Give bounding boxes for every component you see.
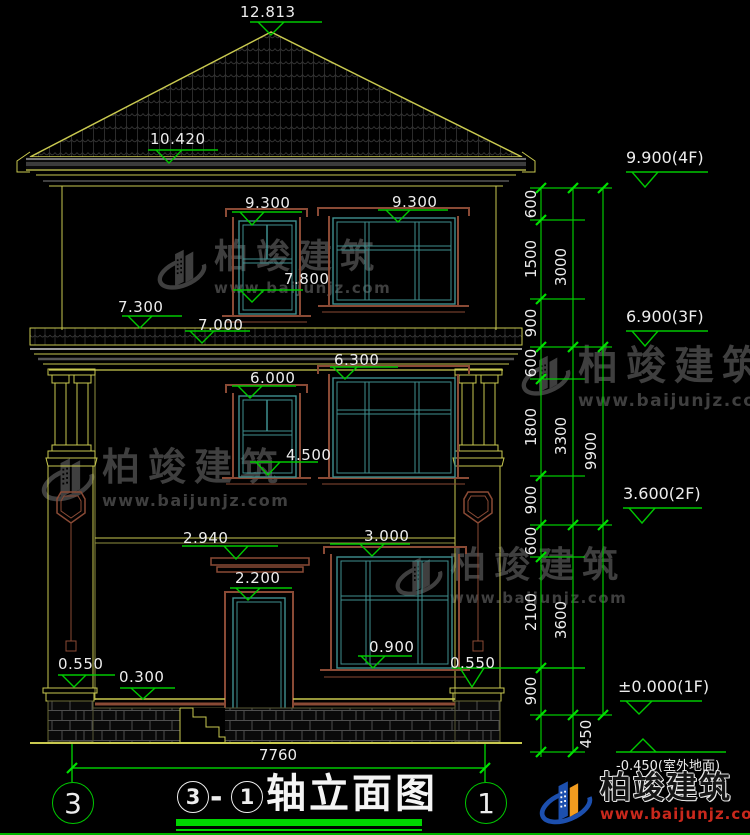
- level-label-2f: 3.600(2F): [623, 484, 701, 503]
- axis-bubble-1: 1: [465, 782, 507, 824]
- dim-seg-2100: 2100: [522, 582, 540, 642]
- dim-floor-3300: 3300: [552, 406, 570, 466]
- spot-label-canopy: 2.940: [183, 529, 228, 547]
- title-axis-bubble-b: 1: [231, 781, 263, 813]
- spot-label-band-low: 7.000: [198, 316, 243, 334]
- window-2f-large: [318, 366, 469, 484]
- brand-url: www.baijunjz.com: [600, 805, 750, 823]
- brand-name: 柏竣建筑: [600, 772, 750, 805]
- dim-floor-3000: 3000: [552, 237, 570, 297]
- window-3f-large: [318, 208, 469, 312]
- roof: [17, 32, 535, 186]
- dim-seg-600b: 600: [522, 333, 540, 393]
- level-label-3f: 6.900(3F): [626, 307, 704, 326]
- spot-label-eave: 10.420: [150, 130, 206, 148]
- level-label-4f: 9.900(4F): [626, 148, 704, 167]
- floor-level-markers: [616, 172, 726, 752]
- title-underline-thick: [176, 819, 422, 826]
- spot-label-3f-win-sill: 7.800: [284, 270, 329, 288]
- axis-number: 1: [477, 787, 495, 820]
- spot-label-3f-win-top-b: 9.300: [392, 193, 437, 211]
- spot-label-porch: 0.300: [119, 668, 164, 686]
- spot-label-2f-small-top: 6.000: [250, 369, 295, 387]
- dim-seg-600c: 600: [522, 511, 540, 571]
- spot-label-1f-sill: 0.900: [369, 638, 414, 656]
- dim-seg-1800: 1800: [522, 397, 540, 457]
- brand-block: 柏竣建筑 www.baijunjz.com: [538, 772, 750, 830]
- level-label-1f: ±0.000(1F): [618, 677, 709, 696]
- elevation-linework: [0, 0, 750, 835]
- dim-floor-3600: 3600: [552, 590, 570, 650]
- column-left: [43, 369, 97, 742]
- spot-label-2f-sill: 4.500: [286, 446, 331, 464]
- spot-label-2f-big-top: 6.300: [334, 351, 379, 369]
- eave-band-2f: [30, 328, 522, 370]
- axis-bubble-3: 3: [52, 782, 94, 824]
- spot-label-1f-win-top: 3.000: [364, 527, 409, 545]
- title-axis-number: 3: [186, 785, 201, 809]
- title-dash: -: [210, 780, 222, 815]
- drawing-title: 轴立面图: [266, 774, 438, 814]
- dim-seg-600a: 600: [522, 174, 540, 234]
- window-2f-small: [222, 385, 311, 484]
- spot-label-ridge: 12.813: [240, 3, 296, 21]
- spot-label-door-top: 2.200: [235, 569, 280, 587]
- dim-total-9900: 9900: [582, 421, 600, 481]
- dim-seg-900c: 900: [522, 661, 540, 721]
- title-underline-thin: [176, 829, 422, 831]
- title-axis-number: 1: [240, 785, 255, 809]
- window-3f-small: [222, 209, 311, 322]
- title-axis-bubble-a: 3: [177, 781, 209, 813]
- spot-label-band-top: 7.300: [118, 298, 163, 316]
- dim-seg-450: 450: [577, 704, 595, 764]
- dim-seg-1500: 1500: [522, 229, 540, 289]
- spot-label-pier-left: 0.550: [58, 655, 103, 673]
- axis-number: 3: [64, 787, 82, 820]
- elevation-drawing-sheet: 柏竣建筑 www.baijunjz.com 柏竣建筑 www.baijunjz.…: [0, 0, 750, 835]
- entry-door: [225, 592, 293, 716]
- window-1f: [320, 547, 470, 677]
- brand-logo-icon: [538, 772, 594, 830]
- spot-label-3f-win-top-a: 9.300: [245, 194, 290, 212]
- overall-width-dim: 7760: [243, 746, 313, 764]
- spot-label-pier-right: 0.550: [450, 654, 495, 672]
